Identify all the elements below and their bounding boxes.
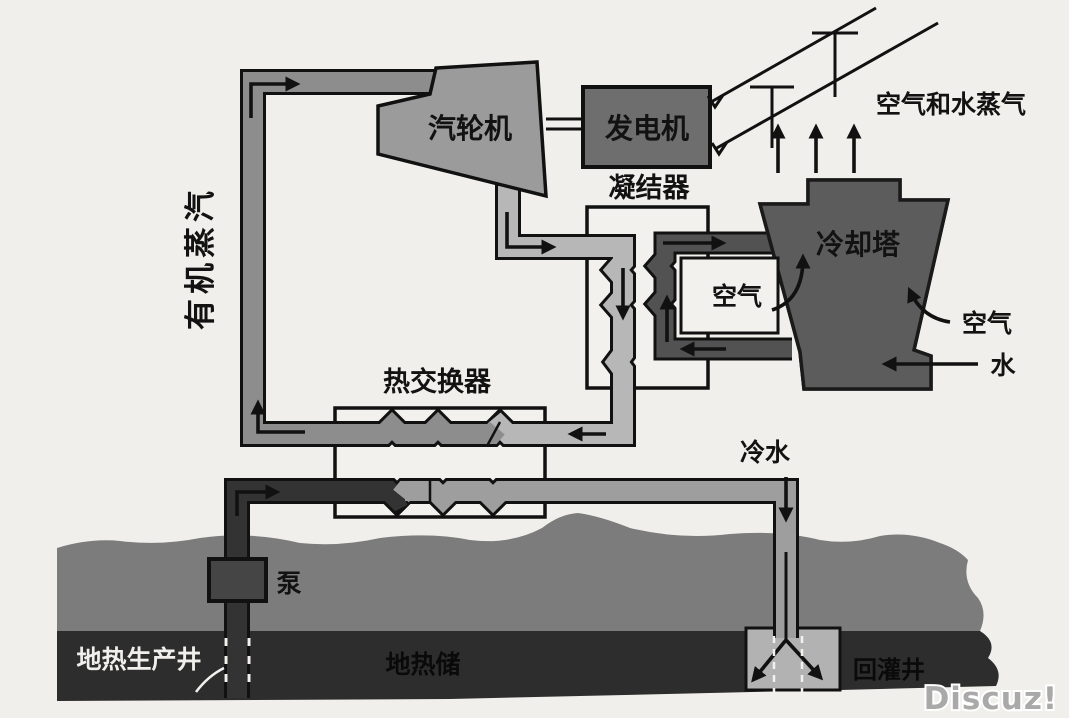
schematic-page: 有机蒸汽 汽轮机 发电机 凝结器 冷却塔 空气和水蒸气 空气 空气 水 热交换器… (0, 0, 1069, 718)
turbine-label: 汽轮机 (428, 112, 512, 145)
pump-label: 泵 (276, 569, 301, 598)
power-line (715, 23, 938, 149)
ground-layer (57, 513, 984, 631)
generator-label: 发电机 (604, 112, 689, 145)
heat-exchanger-label: 热交换器 (383, 366, 492, 398)
production-well-label: 地热生产井 (76, 645, 201, 674)
air-and-steam-label: 空气和水蒸气 (876, 90, 1026, 119)
organic-vapor-label: 有机蒸汽 (183, 186, 219, 330)
injection-well-label: 回灌井 (853, 656, 925, 684)
condenser-label: 凝结器 (609, 173, 691, 204)
pump-box (209, 559, 266, 601)
air-left-label: 空气 (712, 282, 762, 311)
cold-water-label: 冷水 (740, 438, 791, 467)
water-label: 水 (990, 351, 1016, 380)
cooling-tower-label: 冷却塔 (816, 228, 901, 261)
reservoir-label: 地热储 (385, 650, 460, 679)
discuz-watermark: Discuz! (924, 681, 1058, 717)
diagram-canvas: 有机蒸汽 汽轮机 发电机 凝结器 冷却塔 空气和水蒸气 空气 空气 水 热交换器… (0, 0, 1069, 718)
air-right-label: 空气 (962, 309, 1012, 338)
